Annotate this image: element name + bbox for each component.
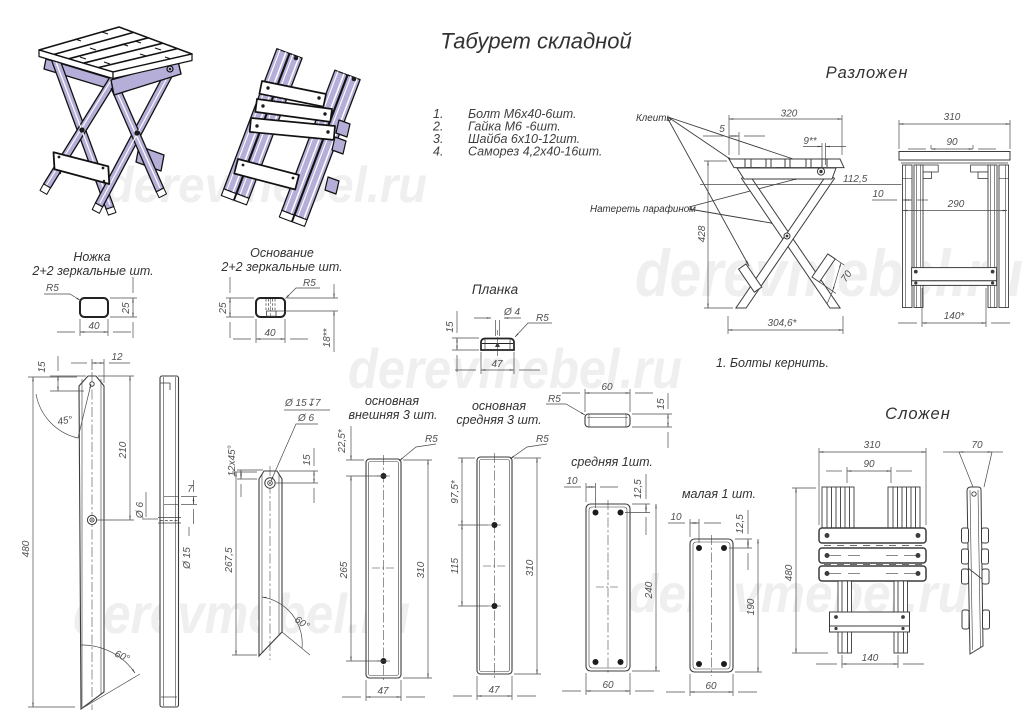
svg-text:480: 480 bbox=[21, 540, 32, 557]
svg-text:5: 5 bbox=[719, 124, 725, 135]
svg-text:15: 15 bbox=[445, 321, 456, 333]
svg-text:12,5: 12,5 bbox=[735, 514, 746, 534]
svg-text:Сложен: Сложен bbox=[885, 405, 951, 423]
svg-text:Клеить: Клеить bbox=[636, 113, 672, 124]
svg-text:25: 25 bbox=[218, 302, 229, 315]
svg-text:Основание: Основание bbox=[250, 246, 314, 260]
svg-text:47: 47 bbox=[488, 685, 500, 696]
svg-text:Натереть парафином: Натереть парафином bbox=[590, 204, 696, 215]
svg-text:основная: основная bbox=[472, 399, 526, 413]
svg-text:12: 12 bbox=[111, 352, 123, 363]
svg-text:25: 25 bbox=[121, 302, 132, 315]
svg-text:115: 115 bbox=[450, 558, 461, 574]
svg-text:40: 40 bbox=[88, 321, 100, 332]
svg-text:140: 140 bbox=[862, 653, 879, 664]
svg-text:Планка: Планка bbox=[472, 282, 519, 297]
svg-text:47: 47 bbox=[377, 686, 389, 697]
svg-text:12,5: 12,5 bbox=[633, 479, 644, 499]
svg-text:Ø 6: Ø 6 bbox=[135, 502, 146, 520]
svg-text:60°: 60° bbox=[113, 649, 131, 665]
svg-text:60: 60 bbox=[601, 382, 613, 393]
svg-text:R5: R5 bbox=[46, 283, 59, 294]
svg-text:Ø 15: Ø 15 bbox=[182, 547, 193, 570]
svg-text:R5: R5 bbox=[425, 434, 438, 445]
svg-text:Ø 6: Ø 6 bbox=[297, 413, 315, 424]
svg-text:428: 428 bbox=[697, 225, 708, 242]
svg-text:112,5: 112,5 bbox=[843, 174, 868, 185]
svg-text:10: 10 bbox=[872, 189, 884, 200]
svg-text:60: 60 bbox=[602, 680, 614, 691]
svg-text:240: 240 bbox=[644, 581, 655, 599]
svg-text:60: 60 bbox=[705, 681, 717, 692]
svg-text:основная: основная bbox=[365, 394, 419, 408]
svg-text:внешняя 3 шт.: внешняя 3 шт. bbox=[349, 408, 438, 422]
svg-text:40: 40 bbox=[264, 328, 276, 339]
svg-text:малая 1 шт.: малая 1 шт. bbox=[682, 487, 756, 501]
svg-text:97,5*: 97,5* bbox=[450, 479, 461, 503]
svg-text:Ножка: Ножка bbox=[73, 250, 110, 264]
svg-text:R5: R5 bbox=[548, 394, 561, 405]
svg-text:Ø 15↧7: Ø 15↧7 bbox=[284, 398, 321, 409]
svg-text:140*: 140* bbox=[944, 311, 966, 322]
svg-text:2+2 зеркальные шт.: 2+2 зеркальные шт. bbox=[31, 264, 153, 278]
svg-text:2+2 зеркальные шт.: 2+2 зеркальные шт. bbox=[220, 260, 342, 274]
svg-text:480: 480 bbox=[784, 564, 795, 581]
svg-text:320: 320 bbox=[781, 109, 798, 120]
svg-text:90: 90 bbox=[946, 137, 958, 148]
svg-text:R5: R5 bbox=[536, 313, 549, 324]
svg-text:70: 70 bbox=[971, 440, 983, 451]
svg-text:15: 15 bbox=[656, 398, 667, 410]
svg-text:R5: R5 bbox=[536, 434, 549, 445]
svg-text:Саморез 4,2х40-16шт.: Саморез 4,2х40-16шт. bbox=[468, 145, 602, 159]
svg-text:7: 7 bbox=[187, 484, 193, 495]
svg-text:22,5*: 22,5* bbox=[337, 428, 348, 453]
svg-text:15: 15 bbox=[302, 454, 313, 466]
svg-text:Ø 4: Ø 4 bbox=[503, 307, 521, 318]
svg-text:310: 310 bbox=[864, 440, 881, 451]
svg-text:210: 210 bbox=[118, 441, 129, 459]
svg-text:90: 90 bbox=[863, 459, 875, 470]
svg-text:4.: 4. bbox=[433, 145, 443, 159]
svg-text:derevmebel.ru: derevmebel.ru bbox=[348, 337, 682, 400]
svg-text:265: 265 bbox=[339, 561, 350, 579]
svg-text:290: 290 bbox=[947, 199, 965, 210]
svg-text:10: 10 bbox=[566, 476, 578, 487]
svg-text:45°: 45° bbox=[57, 414, 74, 427]
svg-text:18**: 18** bbox=[322, 327, 333, 347]
svg-text:10: 10 bbox=[670, 512, 682, 523]
svg-text:Разложен: Разложен bbox=[826, 64, 909, 82]
svg-text:310: 310 bbox=[944, 112, 961, 123]
svg-text:47: 47 bbox=[491, 359, 503, 370]
svg-text:средняя 3 шт.: средняя 3 шт. bbox=[456, 413, 541, 427]
svg-text:15: 15 bbox=[37, 361, 48, 373]
svg-text:310: 310 bbox=[525, 559, 536, 576]
svg-text:310: 310 bbox=[416, 561, 427, 578]
svg-text:190: 190 bbox=[746, 598, 757, 615]
svg-text:9**: 9** bbox=[803, 136, 817, 147]
svg-text:средняя 1шт.: средняя 1шт. bbox=[571, 455, 653, 469]
svg-text:R5: R5 bbox=[303, 278, 316, 289]
svg-text:1. Болты кернить.: 1. Болты кернить. bbox=[716, 356, 829, 370]
svg-text:267,5: 267,5 bbox=[224, 547, 235, 573]
svg-text:304,6*: 304,6* bbox=[768, 318, 798, 329]
svg-text:derevmebel.ru: derevmebel.ru bbox=[73, 582, 410, 645]
svg-text:Табурет складной: Табурет складной bbox=[440, 29, 632, 54]
